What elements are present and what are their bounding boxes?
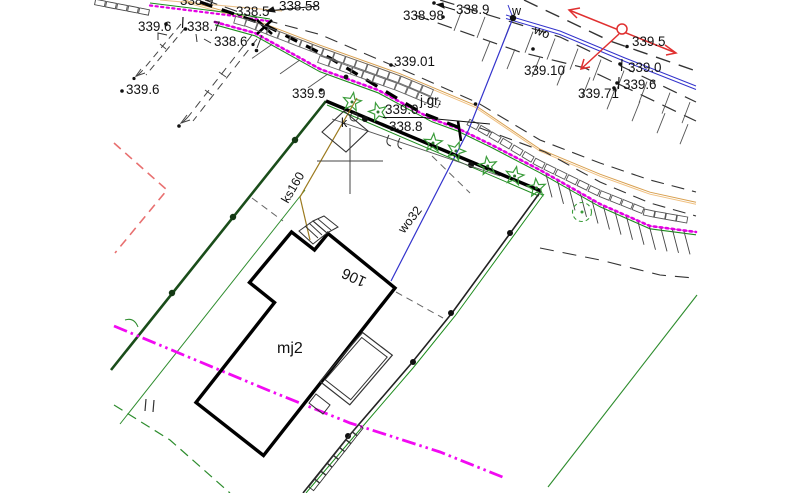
svg-text:338.7: 338.7: [187, 19, 221, 34]
svg-text:339.6: 339.6: [126, 82, 160, 97]
svg-text:338.9: 338.9: [180, 0, 214, 8]
svg-text:339.6: 339.6: [138, 19, 172, 34]
svg-text:338.6: 338.6: [214, 34, 248, 49]
svg-text:339.9: 339.9: [292, 86, 326, 101]
svg-text:338.9: 338.9: [456, 2, 490, 17]
svg-text:338.5: 338.5: [236, 4, 270, 19]
svg-text:339.5: 339.5: [632, 34, 666, 49]
svg-text:w: w: [511, 4, 522, 18]
svg-text:339.6: 339.6: [623, 77, 657, 92]
svg-text:j.gr.: j.gr.: [419, 93, 442, 108]
svg-text:339.10: 339.10: [524, 63, 565, 78]
svg-text:338.8: 338.8: [389, 119, 423, 134]
svg-text:338.98: 338.98: [403, 8, 444, 23]
svg-text:339.0: 339.0: [385, 102, 419, 117]
svg-text:339.0: 339.0: [628, 60, 662, 75]
svg-text:339.01: 339.01: [394, 54, 435, 69]
svg-text:k: k: [341, 116, 348, 130]
svg-text:mj2: mj2: [277, 340, 303, 357]
